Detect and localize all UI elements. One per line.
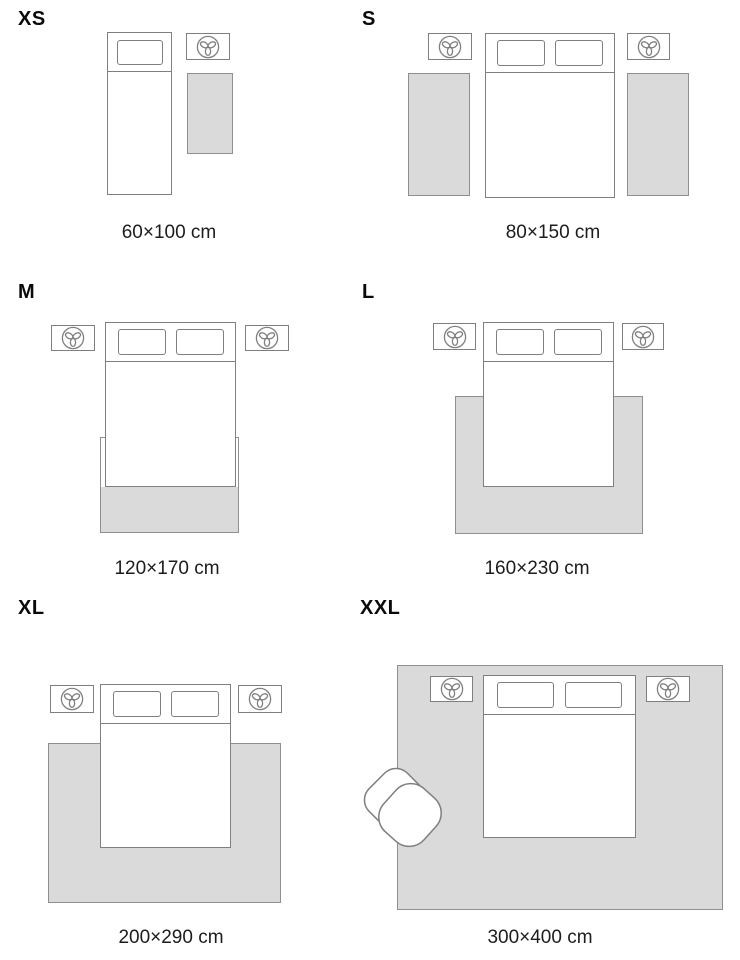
plant-icon bbox=[656, 677, 680, 701]
bed-headboard bbox=[106, 323, 235, 362]
plant-icon bbox=[196, 35, 220, 59]
double-bed bbox=[483, 675, 636, 838]
pillow bbox=[496, 329, 544, 355]
double-bed bbox=[105, 322, 236, 487]
pillow bbox=[118, 329, 166, 355]
dimension-label-m: 120×170 cm bbox=[67, 558, 267, 580]
dimension-label-l: 160×230 cm bbox=[437, 558, 637, 580]
size-label-xs: XS bbox=[18, 9, 46, 29]
nightstand-right bbox=[238, 685, 282, 713]
panel-s: S 80×150 cm bbox=[360, 0, 740, 260]
nightstand-left bbox=[50, 685, 94, 713]
double-bed bbox=[485, 33, 615, 198]
nightstand-left bbox=[433, 323, 476, 350]
plant-icon bbox=[440, 677, 464, 701]
nightstand-right bbox=[646, 676, 690, 702]
rug-left bbox=[408, 73, 470, 196]
plant-icon bbox=[255, 326, 279, 350]
plant-icon bbox=[61, 326, 85, 350]
panel-xl: XL 200×290 cm bbox=[0, 590, 360, 960]
nightstand-left bbox=[51, 325, 95, 351]
plant-icon bbox=[631, 325, 655, 349]
plant-icon bbox=[443, 325, 467, 349]
pillow bbox=[497, 682, 554, 708]
bed-headboard bbox=[101, 685, 230, 724]
rug-visible-area bbox=[101, 487, 238, 532]
panel-xs: XS 60×100 cm bbox=[0, 0, 360, 260]
rug-right bbox=[627, 73, 689, 196]
panel-m: M 120×170 cm bbox=[0, 270, 360, 590]
nightstand-right bbox=[622, 323, 664, 350]
size-label-l: L bbox=[362, 282, 375, 302]
pillow bbox=[176, 329, 224, 355]
dimension-label-s: 80×150 cm bbox=[453, 222, 653, 244]
single-bed bbox=[107, 32, 172, 195]
plant-icon bbox=[60, 687, 84, 711]
rug-size-guide: XS 60×100 cm S bbox=[0, 0, 740, 960]
nightstand-right bbox=[245, 325, 289, 351]
nightstand-right bbox=[627, 33, 670, 60]
plant-icon bbox=[438, 35, 462, 59]
size-label-s: S bbox=[362, 9, 376, 29]
bed-headboard bbox=[484, 676, 635, 715]
pillow bbox=[554, 329, 602, 355]
panel-xxl: XXL 3 bbox=[360, 590, 740, 960]
panel-l: L 160×230 cm bbox=[360, 270, 740, 590]
double-bed bbox=[483, 322, 614, 487]
size-label-m: M bbox=[18, 282, 35, 302]
bed-headboard bbox=[108, 33, 171, 72]
pillow bbox=[117, 40, 163, 65]
nightstand-left bbox=[428, 33, 472, 60]
pillow bbox=[565, 682, 622, 708]
plant-icon bbox=[637, 35, 661, 59]
dimension-label-xs: 60×100 cm bbox=[69, 222, 269, 244]
bed-headboard bbox=[486, 34, 614, 73]
pillow bbox=[171, 691, 219, 717]
size-label-xl: XL bbox=[18, 598, 45, 618]
plant-icon bbox=[248, 687, 272, 711]
rug bbox=[187, 73, 233, 154]
nightstand bbox=[186, 33, 230, 60]
dimension-label-xl: 200×290 cm bbox=[71, 927, 271, 949]
bed-headboard bbox=[484, 323, 613, 362]
size-label-xxl: XXL bbox=[360, 598, 400, 618]
pillow bbox=[497, 40, 545, 66]
nightstand-left bbox=[430, 676, 473, 702]
armchair bbox=[360, 760, 450, 856]
double-bed bbox=[100, 684, 231, 848]
dimension-label-xxl: 300×400 cm bbox=[440, 927, 640, 949]
pillow bbox=[113, 691, 161, 717]
pillow bbox=[555, 40, 603, 66]
